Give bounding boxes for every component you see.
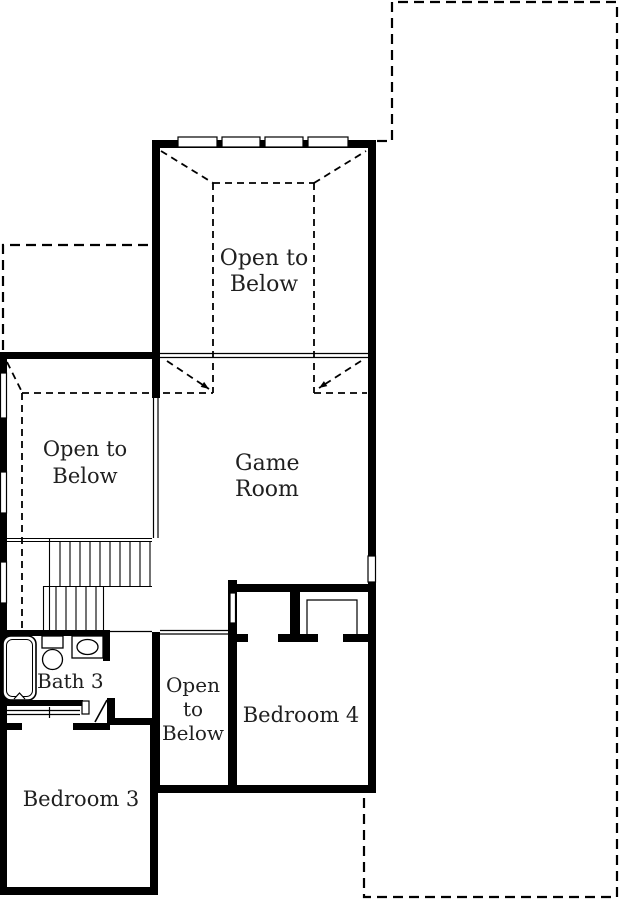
window — [222, 137, 260, 147]
window — [265, 137, 303, 147]
wall-segment — [368, 582, 376, 793]
label-game-room-2: Room — [235, 477, 299, 502]
wall-segment — [368, 140, 376, 557]
wall-segment — [152, 632, 160, 788]
label-open-to-below-left-2: Below — [52, 464, 117, 488]
wall-segment — [0, 887, 158, 895]
floor-plan: Open to Below Game Room Open to Below Ba… — [0, 0, 621, 900]
label-open-to-below-upper-2: Below — [230, 272, 298, 297]
window — [308, 137, 348, 147]
wall-segment — [73, 723, 110, 730]
sink-basin-icon — [77, 640, 98, 655]
wall-segment — [343, 634, 368, 642]
wall-segment — [0, 352, 160, 359]
wall-segment — [237, 634, 248, 642]
window — [1, 562, 7, 603]
label-open-to-below-mid-3: Below — [162, 721, 224, 745]
floor-plan-svg: Open to Below Game Room Open to Below Ba… — [0, 0, 621, 900]
wall-segment — [278, 634, 318, 642]
label-open-to-below-mid-2: to — [183, 697, 203, 721]
wall-segment — [0, 418, 7, 472]
wall-segment — [237, 584, 368, 592]
label-bedroom-4: Bedroom 4 — [243, 703, 360, 727]
toilet-bowl-icon — [43, 650, 63, 670]
label-open-to-below-upper-1: Open to — [220, 246, 308, 271]
label-game-room-1: Game — [235, 451, 300, 476]
door-jamb-slot — [82, 701, 89, 714]
wall-segment — [0, 723, 22, 730]
window — [1, 373, 7, 418]
label-open-to-below-left-1: Open to — [43, 437, 127, 461]
window — [178, 137, 217, 147]
bathtub-inner — [7, 640, 33, 697]
wall-segment — [103, 630, 110, 661]
wall-segment — [0, 700, 83, 706]
wall-segment — [0, 513, 7, 562]
label-open-to-below-mid-1: Open — [166, 673, 220, 697]
wall-opening — [230, 593, 236, 623]
wall-opening — [368, 556, 376, 582]
wall-segment — [290, 592, 300, 640]
wall-segment — [0, 630, 110, 636]
toilet-tank-icon — [42, 636, 63, 648]
wall-segment — [0, 352, 7, 373]
wall-segment — [152, 785, 376, 793]
label-bedroom-3: Bedroom 3 — [23, 787, 140, 811]
label-bath-3: Bath 3 — [37, 669, 104, 693]
window — [1, 472, 7, 513]
wall-segment — [152, 140, 160, 398]
